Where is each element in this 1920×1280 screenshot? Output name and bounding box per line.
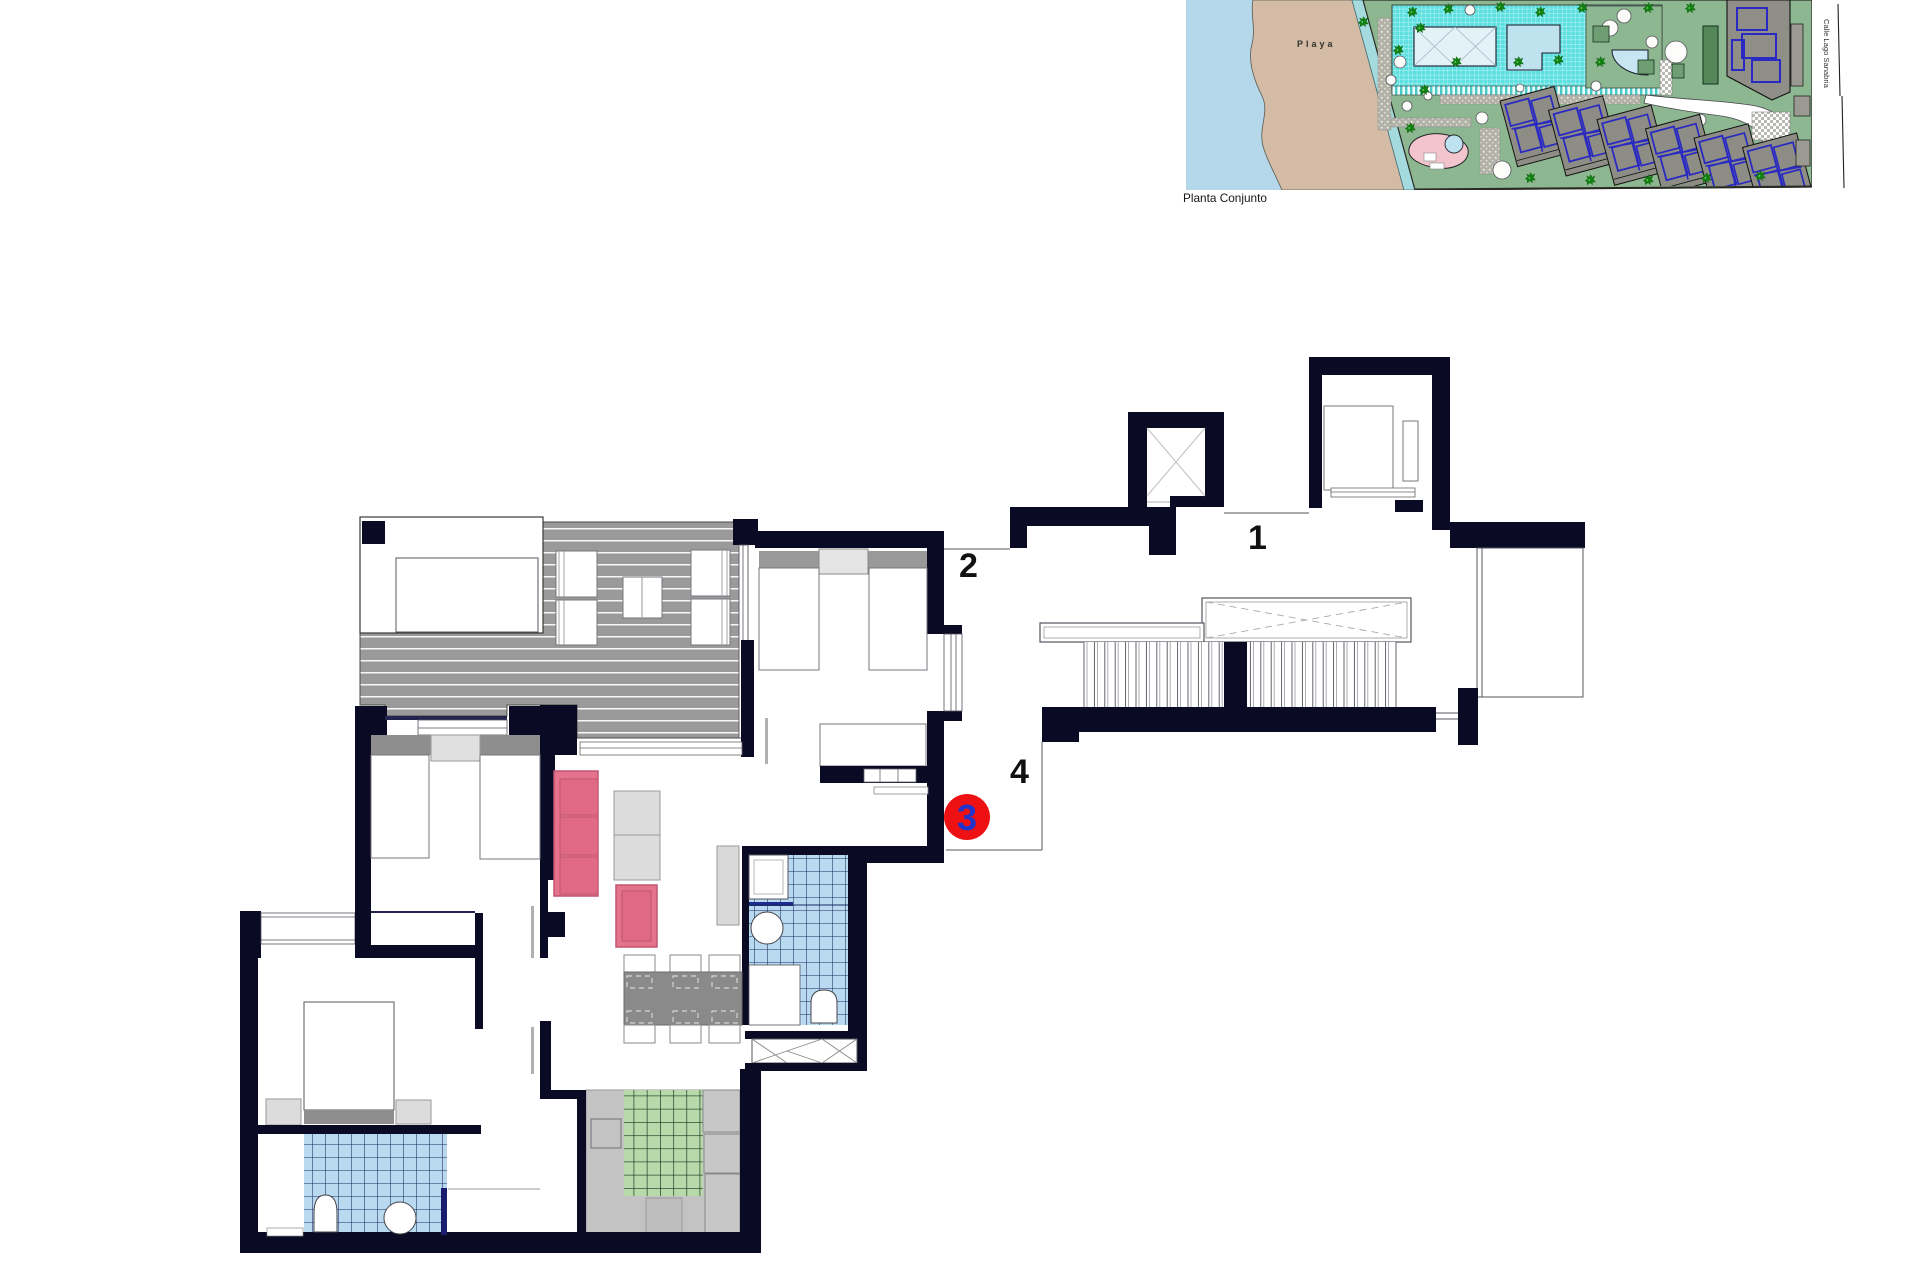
svg-text:1: 1 (1248, 519, 1267, 557)
svg-text:4: 4 (1010, 753, 1029, 791)
svg-text:3: 3 (957, 797, 977, 838)
svg-text:2: 2 (959, 547, 978, 585)
svg-text:Calle Lago Sanabria: Calle Lago Sanabria (1822, 19, 1831, 89)
svg-text:Playa: Playa (1297, 39, 1336, 49)
svg-text:Planta Conjunto: Planta Conjunto (1183, 191, 1267, 205)
